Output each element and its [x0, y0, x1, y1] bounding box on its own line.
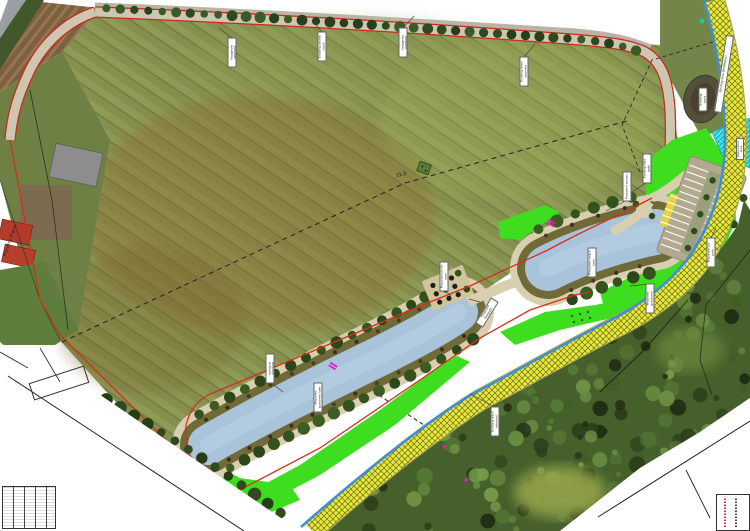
annotation-label: Proposed access: [623, 171, 632, 201]
site-plan-canvas: Poultry Farm 11.3 Existing hedgerow reta…: [0, 0, 750, 531]
site-plan-drawing: [0, 0, 750, 531]
annotation-label: Proposed marginal planting: [266, 353, 275, 383]
lake-2: [548, 232, 655, 268]
annotation-label: Proposed car park: [707, 237, 716, 267]
annotation-label: Proposed picnic area: [440, 261, 449, 291]
annotation-label: Existing field gate: [643, 153, 652, 183]
marker-teal: [700, 19, 705, 24]
annotation-label: Proposed grassland: [646, 283, 655, 313]
annotation-label: Existing ditch retained: [491, 406, 500, 436]
annotation-label: Existing pond: [699, 87, 708, 111]
annotation-label: Existing access track: [318, 31, 327, 61]
annotation-label: Proposed match lake: [588, 247, 597, 277]
annotation-label: Attenuation area: [736, 138, 744, 160]
annotation-label: Existing hedgerow retained: [228, 37, 237, 67]
stamp-black-text: [735, 498, 737, 527]
annotation-label: Proposed hedgerow planting: [399, 27, 408, 57]
annotation-label: Existing trees retained: [520, 56, 529, 86]
key-table: [2, 486, 56, 529]
drawing-stamp: [716, 494, 750, 531]
stamp-red-text: [724, 498, 726, 527]
annotation-label: Proposed specimen lake: [314, 382, 323, 412]
